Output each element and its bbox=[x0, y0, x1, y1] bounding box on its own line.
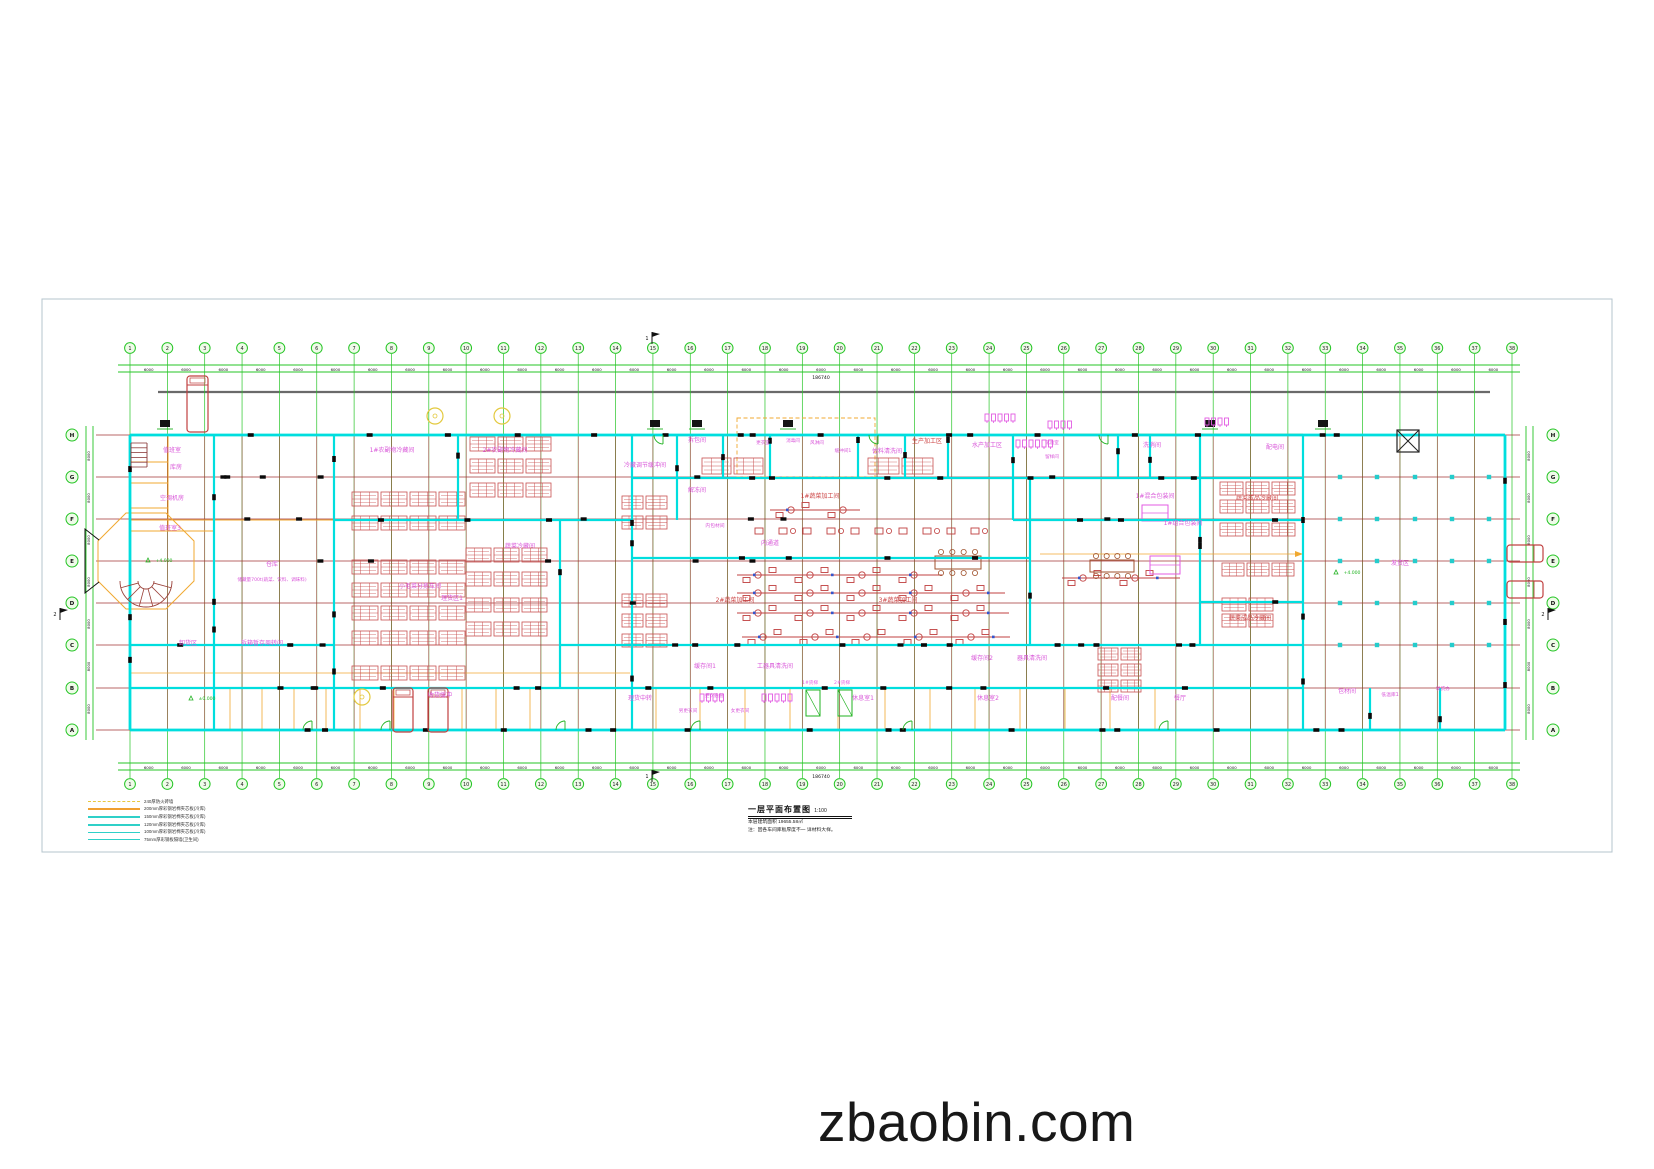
legend-row: 120mm厚彩钢岩棉夹芯板(冷库) bbox=[88, 821, 205, 829]
svg-text:2: 2 bbox=[166, 782, 169, 788]
svg-text:C: C bbox=[1551, 643, 1555, 649]
drawing-note-area: 本层建筑面积 19655.58㎡ bbox=[748, 820, 852, 826]
svg-text:6000: 6000 bbox=[181, 367, 191, 372]
svg-text:H: H bbox=[1551, 433, 1556, 439]
room-label: 冷藏调节缓冲间 bbox=[624, 461, 666, 469]
room-label: 内通道 bbox=[761, 539, 779, 547]
title-block: 一层平面布置图 1:100 本层建筑面积 19655.58㎡ 注：因各车间库板厚… bbox=[748, 804, 852, 834]
svg-text:6000: 6000 bbox=[854, 367, 864, 372]
svg-text:29: 29 bbox=[1173, 782, 1179, 788]
svg-text:6000: 6000 bbox=[816, 367, 826, 372]
svg-text:24: 24 bbox=[986, 346, 992, 352]
svg-text:6000: 6000 bbox=[1339, 367, 1349, 372]
drawing-title-text: 一层平面布置图 bbox=[748, 805, 811, 814]
svg-text:6000: 6000 bbox=[1190, 765, 1200, 770]
room-label: 1#混合包装间 bbox=[1136, 492, 1175, 500]
legend-line-sample bbox=[88, 824, 140, 826]
svg-text:8000: 8000 bbox=[86, 493, 91, 503]
svg-text:30: 30 bbox=[1210, 346, 1216, 352]
svg-text:6000: 6000 bbox=[1227, 367, 1237, 372]
svg-text:15: 15 bbox=[650, 346, 656, 352]
svg-text:6000: 6000 bbox=[667, 765, 677, 770]
svg-text:2: 2 bbox=[53, 612, 56, 618]
svg-text:6000: 6000 bbox=[741, 367, 751, 372]
room-label: 配餐间 bbox=[1111, 694, 1129, 702]
legend-line-sample bbox=[88, 816, 140, 818]
svg-text:6000: 6000 bbox=[667, 367, 677, 372]
svg-text:6000: 6000 bbox=[629, 765, 639, 770]
room-label: 1#农副物冷藏间 bbox=[370, 446, 415, 454]
svg-text:6000: 6000 bbox=[443, 367, 453, 372]
svg-text:34: 34 bbox=[1359, 346, 1365, 352]
svg-text:E: E bbox=[1551, 559, 1555, 565]
room-label: 理货中转 bbox=[628, 694, 652, 702]
svg-text:7: 7 bbox=[353, 782, 356, 788]
legend-label: 200mm厚彩钢岩棉夹芯板(冷库) bbox=[144, 806, 205, 812]
svg-text:18: 18 bbox=[762, 782, 768, 788]
svg-text:6000: 6000 bbox=[1003, 765, 1013, 770]
svg-text:9: 9 bbox=[427, 782, 430, 788]
svg-text:6000: 6000 bbox=[1078, 367, 1088, 372]
svg-text:7: 7 bbox=[353, 346, 356, 352]
svg-text:G: G bbox=[70, 475, 75, 481]
svg-text:8: 8 bbox=[390, 346, 393, 352]
svg-text:25: 25 bbox=[1023, 346, 1029, 352]
room-label: 消毒间 bbox=[786, 437, 800, 444]
svg-text:6000: 6000 bbox=[480, 367, 490, 372]
room-label: 化验室 bbox=[1045, 439, 1059, 446]
svg-text:6000: 6000 bbox=[293, 367, 303, 372]
room-label: 3#蔬菜加工间 bbox=[879, 596, 918, 604]
room-label: 餐厅 bbox=[1174, 694, 1186, 702]
room-label: 理货区1 bbox=[441, 594, 463, 602]
svg-text:6000: 6000 bbox=[181, 765, 191, 770]
room-label: 配电间 bbox=[1266, 443, 1284, 451]
svg-text:14: 14 bbox=[612, 782, 618, 788]
svg-text:6000: 6000 bbox=[555, 765, 565, 770]
svg-text:13: 13 bbox=[575, 346, 581, 352]
room-label: 发货办 bbox=[1436, 685, 1451, 692]
svg-text:19: 19 bbox=[799, 782, 805, 788]
svg-text:6000: 6000 bbox=[966, 765, 976, 770]
svg-text:6000: 6000 bbox=[704, 367, 714, 372]
svg-text:6000: 6000 bbox=[816, 765, 826, 770]
room-label: 2#蔬菜加工间 bbox=[716, 596, 755, 604]
room-label: 休息室1 bbox=[852, 694, 874, 702]
legend-label: 240厚防火砖墙 bbox=[144, 799, 173, 805]
svg-text:21: 21 bbox=[874, 346, 880, 352]
room-label: 发货区 bbox=[1391, 559, 1409, 567]
svg-text:31: 31 bbox=[1247, 346, 1253, 352]
room-label: 蔬菜冷藏间 bbox=[505, 542, 535, 550]
svg-text:30: 30 bbox=[1210, 782, 1216, 788]
svg-text:1: 1 bbox=[645, 336, 648, 342]
svg-text:B: B bbox=[1551, 686, 1555, 692]
svg-text:23: 23 bbox=[949, 782, 955, 788]
legend-row: 150mm厚彩钢岩棉夹芯板(冷库) bbox=[88, 813, 205, 821]
svg-text:1: 1 bbox=[128, 782, 131, 788]
svg-text:A: A bbox=[70, 728, 75, 734]
svg-text:5: 5 bbox=[278, 346, 281, 352]
room-label: 值班室 bbox=[163, 446, 181, 454]
svg-text:3: 3 bbox=[203, 782, 206, 788]
svg-text:18: 18 bbox=[762, 346, 768, 352]
room-label: 库房 bbox=[170, 463, 182, 471]
svg-text:22: 22 bbox=[911, 782, 917, 788]
svg-text:186740: 186740 bbox=[812, 375, 830, 381]
room-label: 收货缓冲 bbox=[428, 691, 452, 699]
legend-row: 200mm厚彩钢岩棉夹芯板(冷库) bbox=[88, 806, 205, 814]
svg-text:16: 16 bbox=[687, 346, 693, 352]
svg-text:8000: 8000 bbox=[1526, 535, 1531, 545]
svg-text:16: 16 bbox=[687, 782, 693, 788]
room-label: 值班室3 bbox=[159, 524, 181, 532]
floor-plan-svg: 1160006000226000600033600060004460006000… bbox=[0, 0, 1654, 1169]
room-label: 蔬菜成品冷藏间 bbox=[1229, 614, 1271, 622]
svg-text:6000: 6000 bbox=[1451, 367, 1461, 372]
svg-text:6000: 6000 bbox=[1302, 765, 1312, 770]
svg-text:27: 27 bbox=[1098, 346, 1104, 352]
room-label: 佐料清洗间 bbox=[872, 447, 902, 455]
page: 1160006000226000600033600060004460006000… bbox=[0, 0, 1654, 1169]
svg-text:6000: 6000 bbox=[1302, 367, 1312, 372]
svg-text:8000: 8000 bbox=[1526, 577, 1531, 587]
svg-text:14: 14 bbox=[612, 346, 618, 352]
svg-text:11: 11 bbox=[500, 782, 506, 788]
room-label: 器具清洗间 bbox=[1017, 654, 1047, 662]
legend-line-sample bbox=[88, 839, 140, 840]
legend-line-sample bbox=[88, 808, 140, 810]
svg-text:8000: 8000 bbox=[86, 451, 91, 461]
room-label: 拆包间 bbox=[688, 436, 706, 444]
svg-text:6000: 6000 bbox=[1115, 765, 1125, 770]
svg-text:6000: 6000 bbox=[555, 367, 565, 372]
svg-text:6000: 6000 bbox=[219, 765, 229, 770]
svg-text:6000: 6000 bbox=[891, 765, 901, 770]
wall-type-legend: 240厚防火砖墙200mm厚彩钢岩棉夹芯板(冷库)150mm厚彩钢岩棉夹芯板(冷… bbox=[88, 798, 205, 844]
room-label: 留样间 bbox=[1045, 453, 1059, 460]
svg-text:4: 4 bbox=[240, 346, 243, 352]
room-label: 内包材间 bbox=[705, 522, 724, 529]
svg-text:25: 25 bbox=[1023, 782, 1029, 788]
svg-text:6000: 6000 bbox=[443, 765, 453, 770]
svg-text:6000: 6000 bbox=[1227, 765, 1237, 770]
svg-text:8000: 8000 bbox=[86, 577, 91, 587]
room-label: 解冻间 bbox=[688, 486, 706, 494]
svg-text:26: 26 bbox=[1061, 782, 1067, 788]
room-label: 休息室2 bbox=[977, 694, 999, 702]
svg-text:+4.000: +4.000 bbox=[1343, 570, 1360, 576]
legend-line-sample bbox=[88, 801, 140, 802]
room-label: 包材间 bbox=[1338, 687, 1356, 695]
svg-text:6000: 6000 bbox=[1115, 367, 1125, 372]
svg-text:8000: 8000 bbox=[1526, 493, 1531, 503]
svg-text:36: 36 bbox=[1434, 346, 1440, 352]
svg-text:12: 12 bbox=[538, 782, 544, 788]
svg-text:6000: 6000 bbox=[1152, 367, 1162, 372]
svg-text:6000: 6000 bbox=[331, 765, 341, 770]
svg-text:6000: 6000 bbox=[368, 367, 378, 372]
svg-text:6000: 6000 bbox=[1040, 367, 1050, 372]
svg-text:32: 32 bbox=[1285, 346, 1291, 352]
room-label: 缓存间2 bbox=[971, 654, 993, 662]
room-label: 更衣通道 bbox=[705, 692, 724, 699]
svg-text:6000: 6000 bbox=[1376, 367, 1386, 372]
svg-text:20: 20 bbox=[836, 782, 842, 788]
svg-text:1: 1 bbox=[645, 774, 648, 780]
svg-text:32: 32 bbox=[1285, 782, 1291, 788]
legend-label: 150mm厚彩钢岩棉夹芯板(冷库) bbox=[144, 814, 205, 820]
svg-text:6000: 6000 bbox=[741, 765, 751, 770]
svg-text:33: 33 bbox=[1322, 346, 1328, 352]
svg-text:26: 26 bbox=[1061, 346, 1067, 352]
svg-text:6000: 6000 bbox=[256, 367, 266, 372]
svg-text:6000: 6000 bbox=[928, 367, 938, 372]
room-label: 女更衣间 bbox=[731, 707, 750, 714]
svg-text:6000: 6000 bbox=[592, 367, 602, 372]
svg-text:B: B bbox=[70, 686, 74, 692]
room-label: 储藏量700t(蔬菜、饮料、调味料) bbox=[237, 576, 306, 583]
svg-text:13: 13 bbox=[575, 782, 581, 788]
svg-text:27: 27 bbox=[1098, 782, 1104, 788]
svg-text:8000: 8000 bbox=[1526, 451, 1531, 461]
svg-text:6000: 6000 bbox=[779, 367, 789, 372]
legend-row: 240厚防火砖墙 bbox=[88, 798, 205, 806]
room-label: 1#货梯 bbox=[802, 679, 818, 686]
svg-text:+4.000: +4.000 bbox=[155, 558, 172, 564]
svg-text:6000: 6000 bbox=[891, 367, 901, 372]
svg-text:6000: 6000 bbox=[629, 367, 639, 372]
svg-text:6000: 6000 bbox=[1414, 765, 1424, 770]
svg-text:31: 31 bbox=[1247, 782, 1253, 788]
room-label: 工器具清洗间 bbox=[757, 662, 793, 670]
legend-row: 100mm厚彩钢岩棉夹芯板(冷库) bbox=[88, 828, 205, 836]
room-label: 男更衣间 bbox=[679, 707, 698, 714]
svg-text:6000: 6000 bbox=[1414, 367, 1424, 372]
svg-text:C: C bbox=[70, 643, 74, 649]
svg-text:6000: 6000 bbox=[1190, 367, 1200, 372]
svg-text:6000: 6000 bbox=[966, 367, 976, 372]
svg-text:20: 20 bbox=[836, 346, 842, 352]
svg-text:6000: 6000 bbox=[1078, 765, 1088, 770]
svg-text:6000: 6000 bbox=[1376, 765, 1386, 770]
svg-text:17: 17 bbox=[724, 782, 730, 788]
svg-text:9: 9 bbox=[427, 346, 430, 352]
svg-text:6000: 6000 bbox=[517, 367, 527, 372]
svg-text:4: 4 bbox=[240, 782, 243, 788]
svg-text:186740: 186740 bbox=[812, 774, 830, 780]
svg-text:6000: 6000 bbox=[1339, 765, 1349, 770]
watermark: zbaobin.com bbox=[818, 1090, 1135, 1154]
room-label: 仓库 bbox=[266, 560, 278, 568]
svg-text:6000: 6000 bbox=[144, 367, 154, 372]
svg-text:8: 8 bbox=[390, 782, 393, 788]
svg-text:35: 35 bbox=[1397, 346, 1403, 352]
room-label: 蔬菜成品冷藏间 bbox=[1236, 494, 1278, 502]
room-label: 风淋间 bbox=[810, 439, 824, 446]
svg-text:28: 28 bbox=[1135, 346, 1141, 352]
room-label: 拆箱暂存周转间 bbox=[241, 639, 283, 647]
svg-text:6000: 6000 bbox=[405, 765, 415, 770]
legend-line-sample bbox=[88, 832, 140, 833]
drawing-title: 一层平面布置图 1:100 bbox=[748, 804, 852, 815]
svg-text:10: 10 bbox=[463, 346, 469, 352]
svg-text:6000: 6000 bbox=[1264, 367, 1274, 372]
room-label: 水产加工区 bbox=[972, 441, 1002, 449]
svg-text:33: 33 bbox=[1322, 782, 1328, 788]
svg-text:F: F bbox=[70, 517, 74, 523]
svg-text:6000: 6000 bbox=[331, 367, 341, 372]
svg-text:22: 22 bbox=[911, 346, 917, 352]
room-label: 2#货梯 bbox=[834, 679, 850, 686]
svg-text:6000: 6000 bbox=[293, 765, 303, 770]
svg-text:6000: 6000 bbox=[1152, 765, 1162, 770]
room-label: 小毛菜分拣车间 bbox=[399, 582, 441, 590]
svg-text:15: 15 bbox=[650, 782, 656, 788]
svg-text:6000: 6000 bbox=[256, 765, 266, 770]
svg-text:12: 12 bbox=[538, 346, 544, 352]
svg-text:6000: 6000 bbox=[1451, 765, 1461, 770]
drawing-scale: 1:100 bbox=[814, 808, 827, 814]
title-underline bbox=[748, 816, 852, 817]
svg-text:6000: 6000 bbox=[779, 765, 789, 770]
svg-text:6000: 6000 bbox=[1040, 765, 1050, 770]
svg-text:A: A bbox=[1551, 728, 1556, 734]
svg-text:D: D bbox=[1551, 601, 1556, 607]
svg-text:6000: 6000 bbox=[1264, 765, 1274, 770]
svg-text:6: 6 bbox=[315, 346, 318, 352]
svg-text:8000: 8000 bbox=[1526, 619, 1531, 629]
room-label: 低温库1 bbox=[1381, 691, 1398, 698]
svg-text:6000: 6000 bbox=[219, 367, 229, 372]
svg-text:34: 34 bbox=[1359, 782, 1365, 788]
svg-text:±0.000: ±0.000 bbox=[198, 696, 215, 702]
svg-text:8000: 8000 bbox=[86, 704, 91, 714]
drawing-note-remark: 注：因各车间库板厚度不一 详材料大样。 bbox=[748, 828, 852, 834]
room-label: 缓冲间1 bbox=[835, 447, 852, 454]
svg-text:6000: 6000 bbox=[368, 765, 378, 770]
svg-text:6000: 6000 bbox=[1488, 765, 1498, 770]
room-label: 卸货区 bbox=[179, 639, 197, 647]
svg-text:6000: 6000 bbox=[854, 765, 864, 770]
svg-text:6: 6 bbox=[315, 782, 318, 788]
svg-text:17: 17 bbox=[724, 346, 730, 352]
svg-text:3: 3 bbox=[203, 346, 206, 352]
svg-text:24: 24 bbox=[986, 782, 992, 788]
svg-text:35: 35 bbox=[1397, 782, 1403, 788]
svg-text:6000: 6000 bbox=[405, 367, 415, 372]
svg-text:6000: 6000 bbox=[480, 765, 490, 770]
svg-text:37: 37 bbox=[1471, 346, 1477, 352]
svg-text:11: 11 bbox=[500, 346, 506, 352]
room-label: 生产加工区 bbox=[912, 437, 942, 445]
svg-text:G: G bbox=[1551, 475, 1556, 481]
room-label: 1#组合包装间 bbox=[1164, 519, 1203, 527]
svg-text:2: 2 bbox=[166, 346, 169, 352]
svg-text:D: D bbox=[70, 601, 75, 607]
svg-text:6000: 6000 bbox=[517, 765, 527, 770]
room-label: 1#蔬菜加工间 bbox=[801, 492, 840, 500]
svg-text:23: 23 bbox=[949, 346, 955, 352]
svg-text:38: 38 bbox=[1509, 346, 1515, 352]
svg-text:36: 36 bbox=[1434, 782, 1440, 788]
svg-text:F: F bbox=[1551, 517, 1555, 523]
svg-text:H: H bbox=[70, 433, 75, 439]
svg-text:8000: 8000 bbox=[1526, 661, 1531, 671]
room-label: 洗消间 bbox=[1143, 441, 1161, 449]
legend-label: 120mm厚彩钢岩棉夹芯板(冷库) bbox=[144, 822, 205, 828]
legend-row: 75mm厚彩钢板隔墙(卫生间) bbox=[88, 836, 205, 844]
title-underline-thin bbox=[748, 818, 852, 819]
svg-text:6000: 6000 bbox=[144, 765, 154, 770]
svg-text:E: E bbox=[70, 559, 74, 565]
svg-text:2: 2 bbox=[1541, 612, 1544, 618]
svg-text:8000: 8000 bbox=[86, 619, 91, 629]
svg-text:1: 1 bbox=[128, 346, 131, 352]
svg-text:10: 10 bbox=[463, 782, 469, 788]
svg-text:29: 29 bbox=[1173, 346, 1179, 352]
svg-text:6000: 6000 bbox=[928, 765, 938, 770]
room-label: 缓存间1 bbox=[694, 662, 716, 670]
svg-text:6000: 6000 bbox=[1003, 367, 1013, 372]
legend-label: 100mm厚彩钢岩棉夹芯板(冷库) bbox=[144, 829, 205, 835]
svg-text:38: 38 bbox=[1509, 782, 1515, 788]
svg-text:19: 19 bbox=[799, 346, 805, 352]
legend-label: 75mm厚彩钢板隔墙(卫生间) bbox=[144, 837, 199, 843]
svg-text:8000: 8000 bbox=[86, 661, 91, 671]
room-label: 空调机房 bbox=[160, 494, 184, 502]
room-label: 2#农副物冷藏间 bbox=[483, 446, 528, 454]
svg-text:21: 21 bbox=[874, 782, 880, 788]
svg-text:8000: 8000 bbox=[1526, 704, 1531, 714]
svg-text:5: 5 bbox=[278, 782, 281, 788]
svg-text:6000: 6000 bbox=[704, 765, 714, 770]
svg-text:28: 28 bbox=[1135, 782, 1141, 788]
room-label: 更衣室 bbox=[756, 439, 770, 446]
svg-text:6000: 6000 bbox=[592, 765, 602, 770]
svg-text:6000: 6000 bbox=[1488, 367, 1498, 372]
svg-text:8000: 8000 bbox=[86, 535, 91, 545]
svg-text:37: 37 bbox=[1471, 782, 1477, 788]
